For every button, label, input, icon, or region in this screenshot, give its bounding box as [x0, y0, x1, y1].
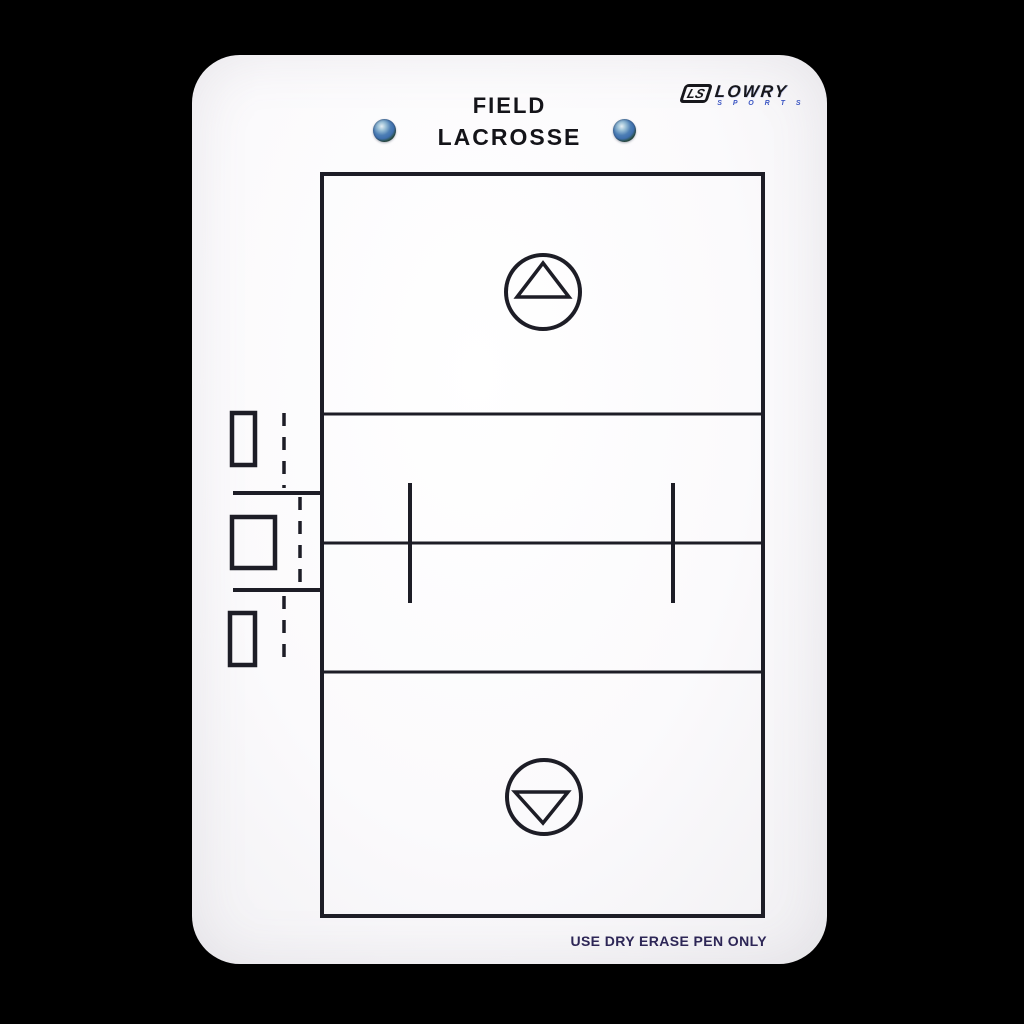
goal-crease-circle-top: [506, 255, 580, 329]
dry-erase-coaching-board: FIELD LACROSSE LS LOWRY S P O R T S: [192, 55, 827, 964]
field-outline: [322, 174, 763, 916]
bench-box-top: [232, 413, 255, 465]
bench-box-bottom: [230, 613, 255, 665]
scorers-table-box: [232, 517, 275, 568]
goal-triangle-up-icon: [517, 263, 569, 297]
lacrosse-field-diagram: [192, 55, 827, 964]
goal-triangle-down-icon: [515, 792, 568, 823]
product-photo-background: FIELD LACROSSE LS LOWRY S P O R T S: [0, 0, 1024, 1024]
dry-erase-instruction: USE DRY ERASE PEN ONLY: [570, 933, 767, 949]
